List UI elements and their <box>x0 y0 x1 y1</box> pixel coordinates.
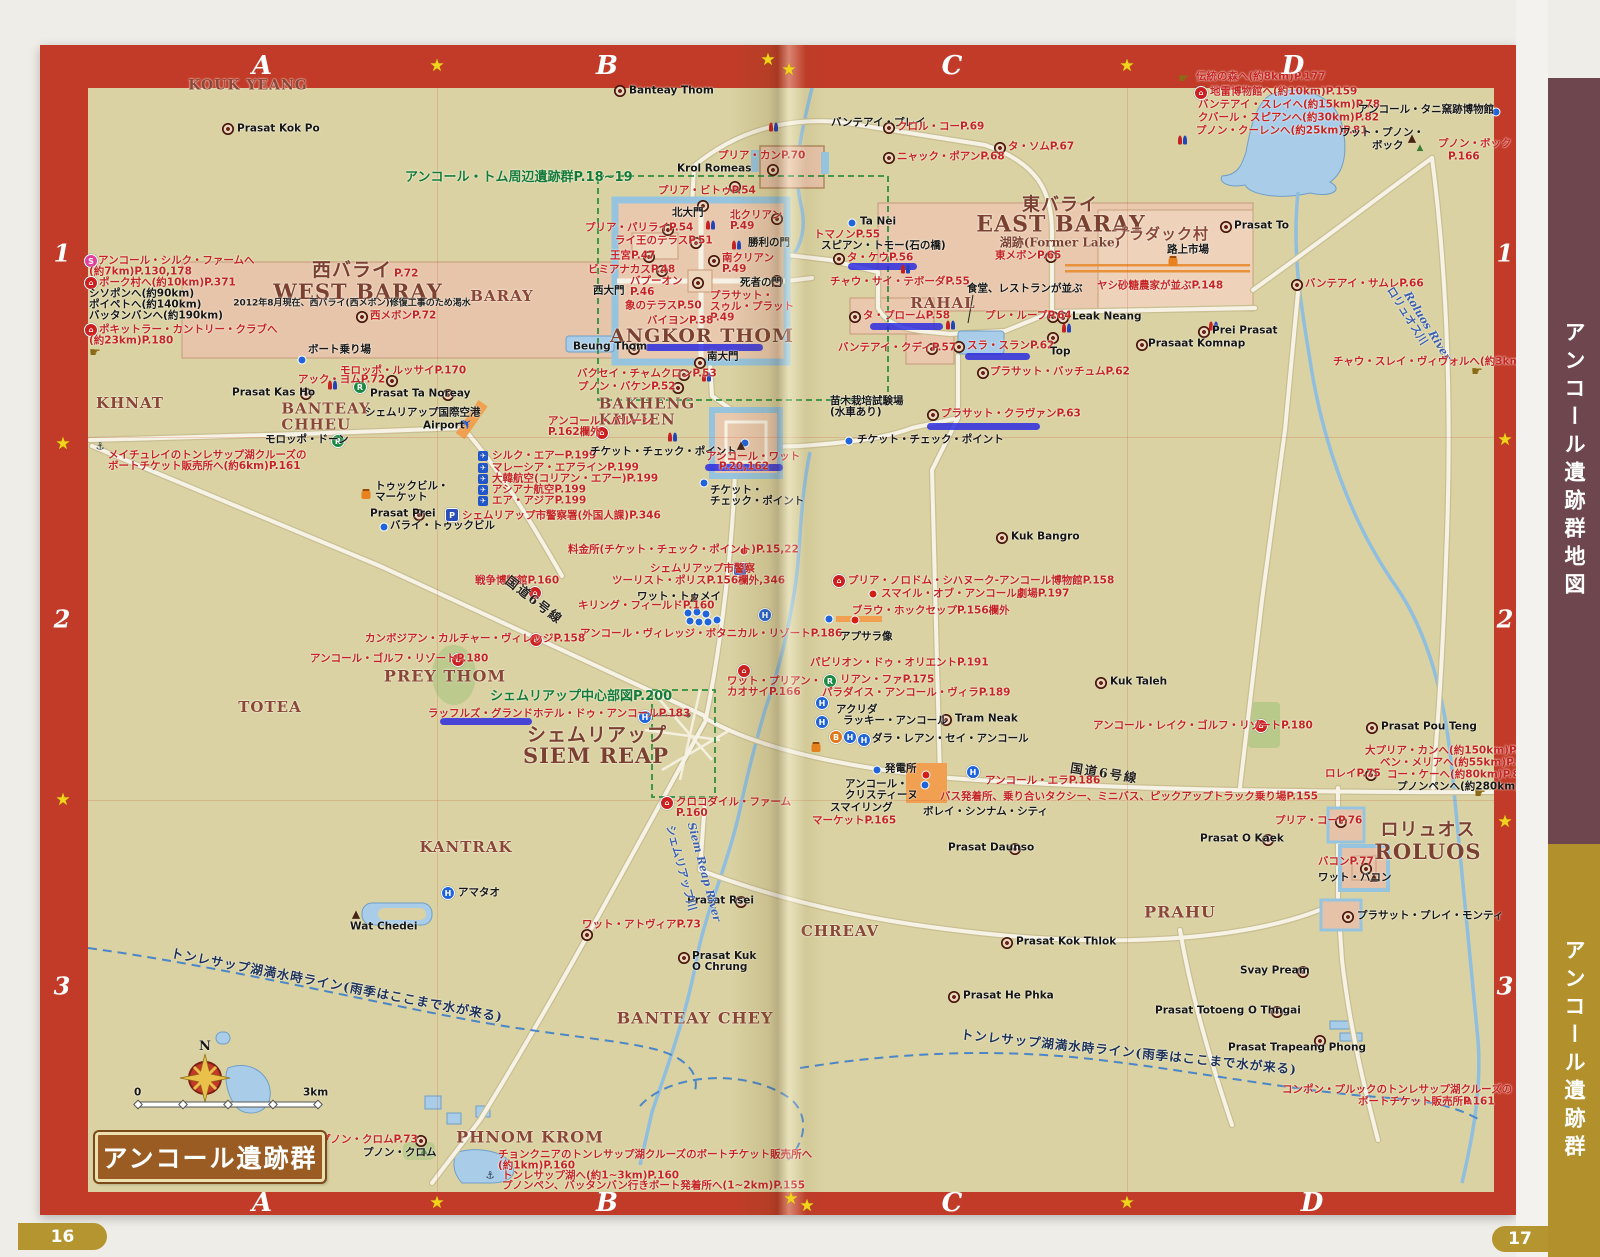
map-title-badge: アンコール遺跡群 <box>95 1132 325 1182</box>
map-label: Prasat Totoeng O Thngai <box>1155 1005 1301 1016</box>
pointing-hand-icon: ☛ <box>89 346 101 361</box>
toilet-icon <box>768 123 778 132</box>
grid-letter-top: B <box>596 51 618 81</box>
highlight-underline <box>965 353 1030 360</box>
blue-dot-icon <box>695 618 704 627</box>
map-label: プレ・ループP.64 <box>985 310 1072 321</box>
map-label: バコンP.77 <box>1318 856 1374 867</box>
toilet-icon <box>1177 136 1187 145</box>
map-label: 西バライ <box>312 261 392 281</box>
map-label: アンコール・タニ窯跡博物館 <box>1358 104 1494 115</box>
map-label: Ta Nei <box>860 216 896 227</box>
star-marker: ★ <box>55 790 70 810</box>
blue-dot-icon <box>298 356 307 365</box>
grid-letter-top: C <box>942 51 963 81</box>
map-label: ボートチケット販売所P.161 <box>1358 1096 1495 1107</box>
map-label: スマイリング <box>830 802 893 813</box>
map-label: ツーリスト・ポリスP.156欄外,346 <box>612 575 785 586</box>
map-label: タ・ソムP.67 <box>1008 141 1074 152</box>
map-label: アンコール・ゴルフ・リゾートP.180 <box>310 653 488 664</box>
map-label: Beung Thom <box>573 341 647 352</box>
map-label: ロリュオス <box>1381 822 1476 841</box>
hotel-icon: H <box>758 608 772 622</box>
red-dot-icon <box>869 590 878 599</box>
map-label: Prasat Prei <box>370 508 436 519</box>
temple-icon <box>1291 279 1303 291</box>
map-label: シルク・エアーP.199 <box>492 450 596 461</box>
airline-icon: ✈ <box>478 474 488 484</box>
market-icon <box>1169 258 1178 266</box>
blue-dot-icon <box>848 219 857 228</box>
blue-dot-icon <box>825 615 834 624</box>
hotel-icon: H <box>815 715 829 729</box>
map-label: クロコダイル・ファーム P.160 <box>676 797 791 819</box>
map-label: パラダイス・アンコール・ヴィラP.189 <box>822 687 1010 698</box>
map-label: Prasat Kok Po <box>237 123 320 134</box>
map-label: ボレイ・シンナム・シティ <box>923 806 1048 817</box>
map-label: アプサラ像 <box>840 631 893 642</box>
map-label: チケット・ チェック・ポイント <box>710 485 804 507</box>
map-label: コー・ケーへ(約80km)P.86 <box>1387 769 1527 780</box>
grid-number-left: 3 <box>54 972 71 1001</box>
map-label: エア・アジアP.199 <box>492 495 586 506</box>
map-label: バッタンバンへ(約190km) <box>89 310 223 321</box>
guidebook-spread: HHHHHHHHRRR⌂⌂⌂⌂⌂⌂⌂⌂⌂⌂⌂SPP✈✈✈✈✈▲▲▲▲▲▲▲✈☛☛… <box>0 0 1600 1257</box>
airline-icon: ✈ <box>478 451 488 461</box>
map-label: 南クリアン P.49 <box>722 253 774 275</box>
temple-icon <box>1220 221 1232 233</box>
map-label: バライ・トゥックビル <box>390 520 495 531</box>
map-label: Banteay Thom <box>629 85 714 96</box>
map-label: BARAY <box>470 289 533 305</box>
blue-dot-icon <box>700 479 709 488</box>
map-label: プリア・パリライP.54 <box>585 222 693 233</box>
map-label: 大プリア・カンへ(約150km)P.84 <box>1365 745 1533 756</box>
map-label: アンコール・トム周辺遺跡群P.18~19 <box>405 171 633 185</box>
map-label: CHREAV <box>801 924 879 940</box>
map-label: アンコール・エラP.186 <box>985 775 1100 786</box>
toilet-icon <box>900 265 910 274</box>
temple-icon <box>1136 339 1148 351</box>
map-label: Prasat Kas Ho <box>232 387 315 398</box>
temple-icon <box>977 367 989 379</box>
map-label: Prasat Kok Thlok <box>1016 936 1116 947</box>
sidebar-tab-map: アンコール遺跡群地図 <box>1548 78 1600 844</box>
map-label: 発電所 <box>885 763 917 774</box>
grid-number-right: 2 <box>1497 605 1514 634</box>
map-label: PRAHU <box>1144 905 1216 922</box>
map-label: モロッポ・ドーン <box>265 434 348 445</box>
map-label: メイチュレイのトンレサップ湖クルーズの ボートチケット販売所へ(約6km)P.1… <box>108 450 306 472</box>
star-marker: ★ <box>1497 430 1512 450</box>
map-label: ワット・プノン・ <box>1340 127 1424 138</box>
map-label: キリング・フィールドP.160 <box>578 600 714 611</box>
blue-dot-icon <box>921 781 930 790</box>
map-label: 食堂、レストランが並ぶ <box>967 283 1083 294</box>
airline-icon: ✈ <box>478 496 488 506</box>
map-label: チケット・チェック・ポイント <box>857 434 1004 445</box>
market-icon <box>812 744 821 752</box>
map-label: Prei Prasat <box>1212 325 1278 336</box>
airline-icon: ✈ <box>478 463 488 473</box>
map-label: アンコール・バルーン P.162欄外 <box>548 416 652 438</box>
map-label: スマイル・オブ・アンコール劇場P.197 <box>881 588 1069 599</box>
map-label: 死者の門 <box>740 277 782 288</box>
map-label: Wat Chedei <box>350 921 418 932</box>
temple-icon <box>996 532 1008 544</box>
grid-number-right: 3 <box>1497 972 1514 1001</box>
blue-dot-icon <box>704 618 713 627</box>
roluos-river <box>1296 192 1479 1183</box>
temple-icon <box>1001 937 1013 949</box>
map-label: ヤシ砂糖農家が並ぶP.148 <box>1097 280 1223 291</box>
temple-icon <box>849 311 861 323</box>
grid-number-right: 1 <box>1497 239 1514 268</box>
grid-letter-top: A <box>252 51 272 81</box>
map-label: ライ王のテラスP.51 <box>615 235 713 246</box>
map-label: プノン・バケンP.52 <box>578 381 676 392</box>
map-label: パビリオン・ドゥ・オリエントP.191 <box>810 657 989 668</box>
hotel-icon: H <box>857 733 871 747</box>
map-label: ワット・アトヴィアP.73 <box>582 919 701 930</box>
compass-north-label: N <box>199 1040 211 1054</box>
star-marker: ★ <box>1119 56 1134 76</box>
map-label: ボック <box>1372 140 1404 151</box>
grid-letter-top: D <box>1282 51 1305 81</box>
map-label: Kuk Bangro <box>1011 531 1080 542</box>
map-label: クロル・コーP.69 <box>897 121 984 132</box>
scale-end-label: 3km <box>303 1087 328 1098</box>
map-label: ROLUOS <box>1374 841 1481 863</box>
star-marker: ★ <box>799 1196 814 1216</box>
map-label: Kuk Taleh <box>1110 676 1167 687</box>
map-label: タ・プロームP.58 <box>863 310 950 321</box>
map-label: Prasat Trapeang Phong <box>1228 1042 1366 1053</box>
map-label: 2012年8月現在、西バライ(西メボン)修復工事のため渇水 <box>233 299 471 308</box>
highlight-underline <box>870 323 943 330</box>
map-label: プラサット・ スゥル・プラット P.49 <box>710 290 794 323</box>
airline-icon: ✈ <box>478 485 488 495</box>
sight-icon: ⌂ <box>832 574 846 588</box>
map-label: アンコール・ クリスティーヌ <box>845 779 918 801</box>
map-label: Top <box>1050 346 1071 357</box>
red-dot-icon <box>851 616 860 625</box>
map-label: 北大門 <box>672 207 704 218</box>
map-label: 北クリアン P.49 <box>730 210 782 232</box>
map-label: PREY THOM <box>384 669 506 686</box>
map-label: 象のテラスP.50 <box>625 300 702 311</box>
highlight-underline <box>927 423 1040 430</box>
temple-icon <box>767 164 779 176</box>
map-label: クバール・スピアンへ(約30km)P.82 <box>1198 112 1379 123</box>
map-label: ビミアナカスP.48 <box>588 264 675 275</box>
grid-letter-bottom: C <box>942 1188 963 1218</box>
map-label: KOUK YEANG <box>188 79 308 94</box>
map-label: Airport <box>423 420 465 431</box>
map-label: KHNAT <box>96 396 164 412</box>
map-label: スラ・スランP.62 <box>967 340 1054 351</box>
star-marker: ★ <box>1119 1193 1134 1213</box>
map-label: TOTEA <box>238 700 301 716</box>
map-label: Prasat To <box>1234 220 1289 231</box>
sidebar-tab-section: アンコール遺跡群 <box>1548 844 1600 1257</box>
map-label: スピアン・トモー(石の橋) <box>821 240 946 251</box>
toilet-icon <box>945 321 955 330</box>
map-label: チャウ・サイ・テボーダP.55 <box>830 276 970 287</box>
temple-icon <box>833 253 845 265</box>
map-label: P.72 <box>394 268 418 279</box>
scale-bar <box>134 1100 322 1108</box>
temple-icon <box>1095 677 1107 689</box>
map-label: Prasat He Phka <box>963 990 1054 1001</box>
map-label: Krol Romeas <box>677 163 751 174</box>
map-label: Prasat Ta Noreay <box>370 388 470 399</box>
map-label: バス発着所、乗り合いタクシー、ミニバス、ピックアップトラック乗り場P.155 <box>940 791 1318 802</box>
map-label: プリア・カンP.70 <box>718 150 805 161</box>
map-label: アンコール・レイク・ゴルフ・リゾートP.180 <box>1093 720 1313 731</box>
map-label: 西メボンP.72 <box>370 310 436 321</box>
map-label: バンテアイ・スレイへ(約15km)P.78 <box>1198 99 1380 110</box>
map-label: 地雷博物館へ(約10km)P.159 <box>1210 86 1357 97</box>
map-label: バプーオン P.46 <box>630 276 683 298</box>
map-label: KANTRAK <box>419 840 512 856</box>
map-label: タ・ケウP.56 <box>847 252 913 263</box>
pointing-hand-icon: ☛ <box>1178 72 1190 87</box>
blue-dot-icon <box>686 617 695 626</box>
map-label: Prasat Pou Teng <box>1381 721 1477 732</box>
temple-icon <box>581 929 593 941</box>
grid-number-left: 2 <box>54 605 71 634</box>
star-marker: ★ <box>429 1193 444 1213</box>
map-label: 勝利の門 <box>748 237 790 248</box>
star-marker: ★ <box>783 1189 798 1209</box>
map-label: 路上市場 <box>1167 244 1209 255</box>
star-marker: ★ <box>55 434 70 454</box>
map-label: シェムリアップ市警察署(外国人課)P.346 <box>462 510 661 521</box>
temple-icon <box>883 152 895 164</box>
page-number-right: 17 <box>1492 1226 1548 1252</box>
boat-icon: ⚓ <box>96 442 105 453</box>
grid-number-left: 1 <box>54 239 71 268</box>
grid-letter-bottom: D <box>1301 1188 1324 1218</box>
star-marker: ★ <box>429 56 444 76</box>
page-number-left: 16 <box>18 1223 107 1250</box>
map-label: シェムリアップ市警察 <box>650 563 755 574</box>
map-label: 料金所(チケット・チェック・ポイント)P.15,22 <box>568 544 799 555</box>
map-label: ワット・プリアン・ カオサイP.166 <box>727 676 821 698</box>
map-label: プノン・ボック <box>1438 138 1512 149</box>
temple-icon <box>708 255 720 267</box>
map-label: Prasaat Komnap <box>1148 338 1245 349</box>
map-label: 伝統の森へ(約8km)P.177 <box>1196 71 1326 82</box>
map-label: Prasat O Kaek <box>1200 833 1284 844</box>
compass-rose <box>180 1054 230 1102</box>
map-label: SIEM REAP <box>523 745 669 767</box>
grid-letter-bottom: B <box>596 1188 618 1218</box>
map-label: プラダック村 <box>1113 227 1209 243</box>
map-label: 苗木栽培試験場 (水車あり) <box>830 396 904 418</box>
map-label: 湖跡(Former Lake) <box>1000 237 1121 250</box>
map-label: プノンペンへ(約280km) <box>1397 781 1520 792</box>
hotel-icon: H <box>843 730 857 744</box>
map-label: P.166 <box>1448 151 1480 162</box>
toilet-icon <box>1061 324 1071 333</box>
map-label: バンテアイ・サムレP.66 <box>1305 278 1424 289</box>
map-label: プリア・ビトゥP.54 <box>658 185 756 196</box>
map-label: トゥックビル・ マーケット <box>375 481 449 503</box>
map-label: 東メボンP.65 <box>995 250 1061 261</box>
map-label: Tram Neak <box>955 713 1018 724</box>
sight-icon: ⌂ <box>660 796 674 810</box>
map-label: マーケットP.165 <box>812 815 896 826</box>
scale-zero-label: 0 <box>134 1087 141 1098</box>
map-label: Leak Neang <box>1072 311 1142 322</box>
map-label: ニャック・ポアンP.68 <box>897 151 1005 162</box>
map-label: プラサット・クラヴァンP.63 <box>941 408 1081 419</box>
map-label: ラッキー・アンコール <box>843 715 948 726</box>
map-label: ワット・バコン <box>1318 872 1392 883</box>
red-dot-icon <box>922 771 931 780</box>
map-label: BANTEAY CHEY <box>617 1011 774 1028</box>
map-label: PHNOM KROM <box>456 1130 604 1147</box>
star-marker: ★ <box>1497 812 1512 832</box>
temple-icon <box>678 952 690 964</box>
temple-icon <box>222 123 234 135</box>
blue-dot-icon <box>845 437 854 446</box>
page-edge <box>1516 0 1548 1257</box>
hotel-icon: H <box>441 886 455 900</box>
hotel-icon: H <box>966 765 980 779</box>
map-label: Svay Pream <box>1240 965 1310 976</box>
bank-icon: B <box>829 730 843 744</box>
temple-icon <box>614 85 626 97</box>
toilet-icon <box>705 221 715 230</box>
map-label: コンポン・プルックのトンレサップ湖クルーズの <box>1282 1084 1512 1095</box>
map-label: プラサット・プレイ・モンティ <box>1357 910 1503 921</box>
map-label: プリア・コーP.76 <box>1275 815 1362 826</box>
map-label: 王宮P.47 <box>610 250 655 261</box>
guide-line <box>1127 88 1128 1192</box>
pagoda-icon: ▲ <box>352 908 360 921</box>
market-icon <box>362 491 371 499</box>
temple-icon <box>927 409 939 421</box>
map-label: プノンペン、バッタンバン行きボート発着所へ(1~2km)P.155 <box>502 1180 805 1191</box>
temple-icon <box>948 991 960 1003</box>
map-label: 西大門 <box>593 285 625 296</box>
boat-icon: ⚓ <box>486 1171 495 1182</box>
blue-dot-icon <box>873 766 882 775</box>
map-label: ロレイP.75 <box>1325 768 1381 779</box>
temple-icon <box>386 375 398 387</box>
map-label: プノン・クロム <box>363 1147 437 1158</box>
temple-icon <box>1366 722 1378 734</box>
map-label: ブラウ・ホックセップP.156欄外 <box>852 605 1010 616</box>
map-label: Prasat Daunso <box>948 842 1034 853</box>
map-label: シェムリアップ国際空港 <box>365 407 481 418</box>
map-label: 南大門 <box>707 351 739 362</box>
map-label: Prasat Kuk O Chrung <box>692 951 756 973</box>
map-label: プノン・クロムP.73 <box>320 1134 418 1145</box>
temple-icon <box>692 277 704 289</box>
map-label: ベン・メリアへ(約55km)P.83 <box>1380 757 1531 768</box>
temple-icon <box>1342 911 1354 923</box>
map-label: ラッフルズ・グランドホテル・ドゥ・アンコールP.183 <box>428 708 690 719</box>
map-label: バクセイ・チャムクロンP.53 <box>577 368 717 379</box>
blue-dot-icon <box>713 616 722 625</box>
blue-dot-icon <box>380 523 389 532</box>
map-label: シェムリアップ中心部図P.200 <box>490 690 672 704</box>
map-label: (約23km)P.180 <box>89 335 173 346</box>
map-label: アマタオ <box>458 887 500 898</box>
map-label: BANTEAY CHHEU <box>281 401 370 433</box>
map-label: カンボジアン・カルチャー・ヴィレッジP.158 <box>365 633 585 644</box>
temple-icon <box>356 311 368 323</box>
map-label: プラサット・バッチュムP.62 <box>990 366 1130 377</box>
map-label: ダラ・レアン・セイ・アンコール <box>872 733 1029 744</box>
star-marker: ★ <box>781 60 796 80</box>
map-label: モロッポ・ルッサイP.170 <box>340 365 466 376</box>
map-label: バンテアイ・クディP.57 <box>838 342 956 353</box>
map-label: ボート乗り場 <box>308 344 371 355</box>
map-label: P.20,162 <box>719 461 769 472</box>
map-label: リアン・ファP.175 <box>840 674 934 685</box>
grid-letter-bottom: A <box>252 1188 272 1218</box>
mountain-icon: ▲ <box>1417 143 1424 153</box>
star-marker: ★ <box>760 50 775 70</box>
map-label: アンコール・ヴィレッジ・ボタニカル・リゾートP.186 <box>580 628 842 639</box>
toilet-icon <box>731 241 741 250</box>
map-label: プリア・ノロドム・シハヌーク-アンコール博物館P.158 <box>848 575 1114 586</box>
toilet-icon <box>667 433 677 442</box>
